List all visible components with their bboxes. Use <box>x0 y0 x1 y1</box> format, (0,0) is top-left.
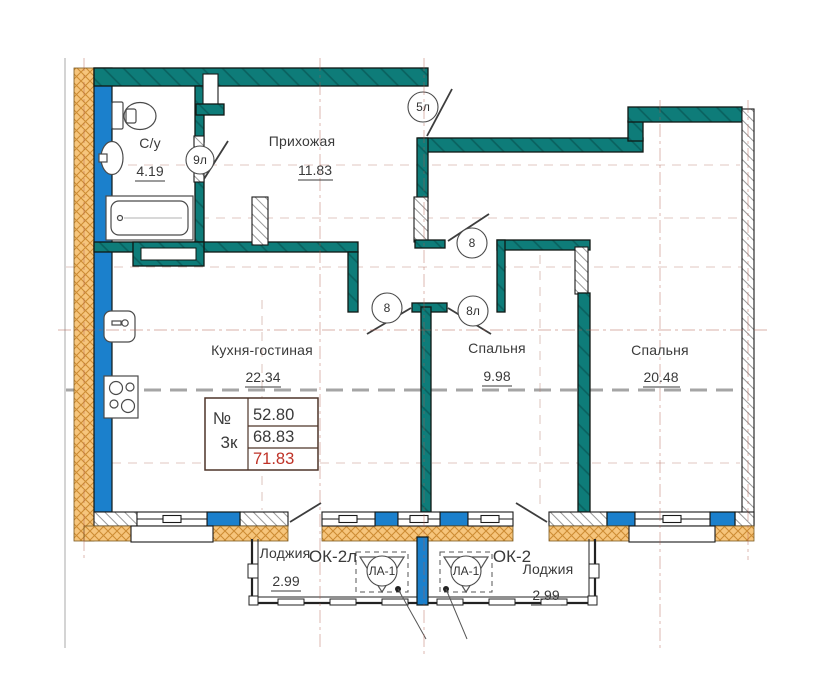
wall-bathroom-lower <box>195 180 204 244</box>
door-label-kitchen: 8 <box>384 301 391 315</box>
room-area-hallway: 11.83 <box>298 162 332 178</box>
wall-seg-hatch <box>240 512 288 526</box>
room-name-bathroom: С/у <box>139 135 161 151</box>
room-area-bedroom1: 9.98 <box>483 368 510 384</box>
wall-entrance-step <box>628 121 643 141</box>
loggia-right-name: Лоджия <box>523 561 574 577</box>
wall-entry-foot <box>415 240 445 248</box>
duct-base <box>196 104 224 115</box>
duct-niche <box>203 74 218 106</box>
wall-seg-hatch <box>94 512 137 526</box>
loggia-divider <box>417 537 428 605</box>
table-number-label: № <box>213 409 231 428</box>
wall-seg-blue <box>710 512 735 526</box>
wall-entrance-lower <box>418 138 643 152</box>
room-labels: С/у 4.19 Прихожая 11.83 Кухня-гостиная 2… <box>135 133 689 387</box>
wall-niche-inner <box>141 248 196 260</box>
stove <box>104 376 138 418</box>
door-label-bedroom: 8л <box>466 304 480 318</box>
kitchen-sink <box>104 311 135 342</box>
room-area-kitchen: 22.34 <box>245 369 280 385</box>
room-area-bathroom: 4.19 <box>136 163 163 179</box>
loggia-left-area: 2.99 <box>272 573 299 589</box>
assembly-marker-left: ЛА-1 <box>356 552 426 639</box>
room-name-bedroom1: Спальня <box>468 340 526 356</box>
apartment-info-table: № 3к 52.80 68.83 71.83 <box>205 398 318 470</box>
window-bedroom2 <box>629 512 715 542</box>
window-loggia-left-1 <box>322 512 375 526</box>
door-label-hall: 8 <box>469 236 476 250</box>
table-living-area: 52.80 <box>253 406 294 424</box>
window-kitchen <box>131 512 213 542</box>
wall-seg-hatch <box>549 512 607 526</box>
table-type-label: 3к <box>221 433 238 452</box>
assembly-marker-right: ЛА-1 <box>440 552 492 639</box>
toilet <box>112 102 156 130</box>
window-loggia-left-2 <box>398 512 440 526</box>
bathtub <box>106 196 193 240</box>
loggia-left-name: Лоджия <box>260 545 311 561</box>
assembly-label: ЛА-1 <box>369 564 396 578</box>
floor-plan-drawing: ЛА-1 ЛА-1 <box>0 0 828 679</box>
assembly-label: ЛА-1 <box>453 564 480 578</box>
door-panel-hall <box>252 197 268 245</box>
wall-left-blue <box>94 68 112 512</box>
door-label-entrance: 5л <box>416 100 430 114</box>
wall-seg-blue <box>207 512 240 526</box>
floor-plan: ЛА-1 ЛА-1 <box>0 0 828 679</box>
loggia-right-area: 2.99 <box>532 587 559 603</box>
wall-bedroom1-left <box>497 240 505 312</box>
wall-top <box>94 68 428 86</box>
room-area-bedroom2: 20.48 <box>643 369 678 385</box>
wall-seg-blue <box>607 512 635 526</box>
wall-top-right <box>628 107 742 122</box>
wall-t-stem <box>421 307 431 512</box>
wall-bedroom-divider <box>578 293 590 512</box>
insulation-bottom <box>213 526 288 541</box>
window-loggia-right <box>468 512 513 526</box>
column-bedroom-divider <box>575 247 588 294</box>
wall-seg-hatch <box>735 512 754 526</box>
wall-seg-blue <box>375 512 398 526</box>
room-name-bedroom2: Спальня <box>631 342 689 358</box>
column-entry <box>414 197 428 242</box>
table-apartment-area: 68.83 <box>253 428 294 446</box>
room-name-hallway: Прихожая <box>269 133 335 149</box>
wall-seg-blue <box>440 512 468 526</box>
window-sill <box>131 526 213 542</box>
insulation-bottom <box>549 526 629 541</box>
insulation-bottom <box>84 526 132 541</box>
wall-entry-vertical <box>417 138 428 198</box>
table-total-area: 71.83 <box>253 450 294 468</box>
loggia-left-mark: ОК-2л <box>309 547 357 566</box>
room-name-kitchen: Кухня-гостиная <box>211 342 313 358</box>
wall-corridor <box>348 252 358 312</box>
door-label-bathroom: 9л <box>193 153 207 167</box>
window-sill <box>629 526 715 542</box>
